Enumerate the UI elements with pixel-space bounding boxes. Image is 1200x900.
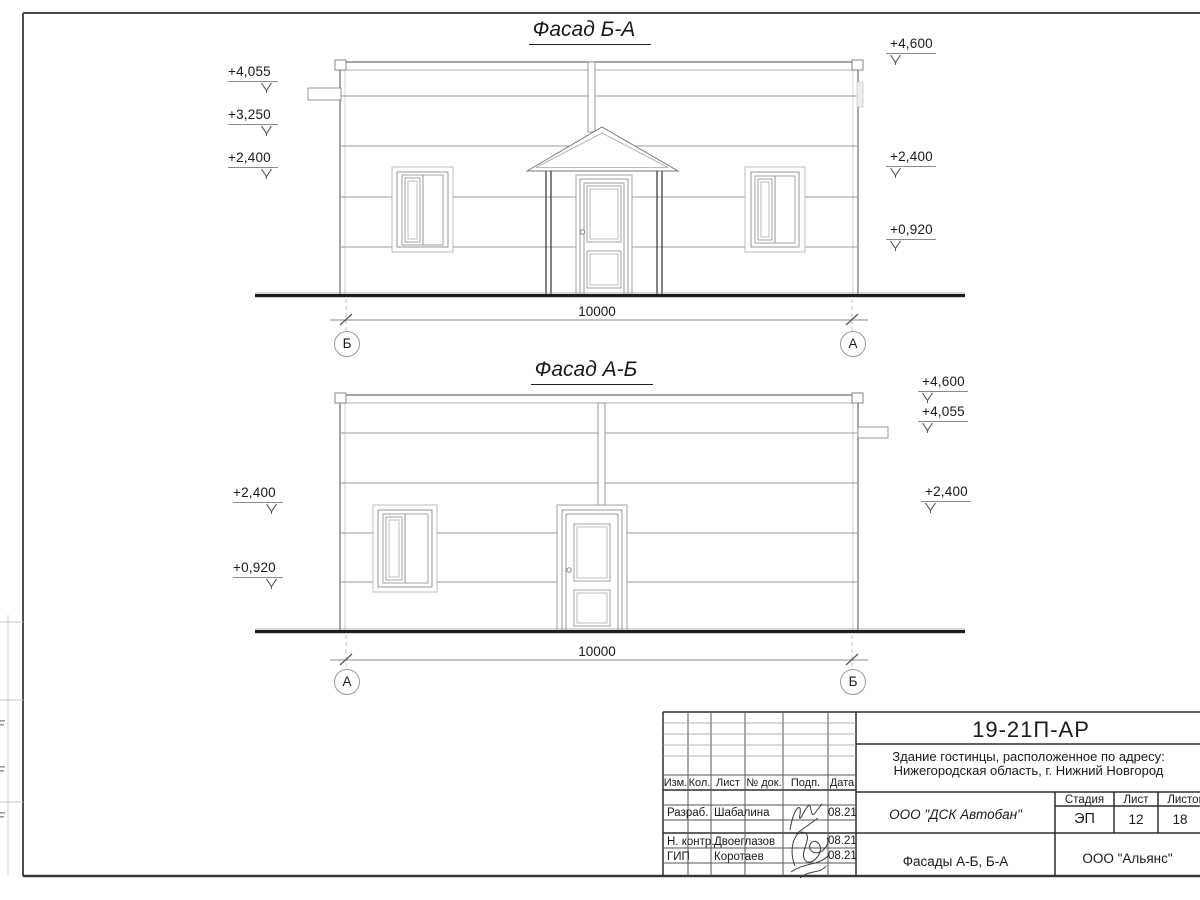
facade-ab-title: Фасад А-Б	[497, 358, 687, 385]
elevation-value: +2,400	[233, 485, 283, 500]
elevation-arrow-icon	[260, 82, 273, 93]
signer-role: Разраб.	[667, 807, 708, 819]
elevation-mark: +3,250	[228, 107, 278, 125]
door-handle	[580, 230, 584, 234]
dimension-label: 10000	[547, 644, 647, 659]
contractor-org: ООО "Альянс"	[1055, 851, 1200, 866]
elevation-arrow-icon	[265, 503, 278, 514]
elevation-arrow-icon	[921, 422, 934, 433]
stage-value: ЭП	[1055, 811, 1114, 827]
vent-pipe	[588, 62, 595, 132]
elevation-arrow-icon	[889, 54, 902, 65]
elevation-value: +3,250	[228, 107, 278, 122]
elevation-value: +4,055	[918, 404, 968, 419]
rev-header-podp: Подп.	[783, 777, 828, 789]
signer-role: Н. контр.	[667, 836, 714, 848]
sheets-value: 18	[1158, 812, 1200, 827]
signer-name: Коротаев	[714, 851, 764, 863]
vent-pipe	[598, 403, 605, 507]
elevation-value: +4,055	[228, 64, 278, 79]
facade-ba-title: Фасад Б-А	[495, 18, 685, 45]
design-company: ООО "ДСК Автобан"	[856, 807, 1055, 822]
window-left	[373, 505, 437, 592]
elevation-arrow-icon	[921, 392, 934, 403]
axis-marker-b-top: Б	[334, 331, 360, 357]
signature-shabalina	[790, 804, 822, 834]
parapet-cap-right	[852, 393, 863, 403]
wall-pipe-right	[858, 427, 888, 438]
parapet-cap-left	[335, 60, 346, 70]
drawing-sheet: Фасад Б-А +4,055 +3,250 +2,400 +4,600 +2…	[0, 0, 1200, 900]
object-address-line2: Нижегородская область, г. Нижний Новгоро…	[856, 763, 1200, 778]
rev-header-kol: Кол.	[688, 777, 711, 789]
ground-line	[255, 294, 965, 297]
parapet-cap-right	[852, 60, 863, 70]
wall-pipe-left	[308, 88, 341, 100]
sheet-value: 12	[1114, 812, 1158, 827]
rev-header-doc: № док.	[745, 777, 783, 789]
elevation-arrow-icon	[889, 167, 902, 178]
ground-line	[255, 630, 965, 633]
entrance-door	[557, 505, 627, 632]
parapet-cap-left	[335, 393, 346, 403]
signer-role: ГИП	[667, 851, 690, 863]
elevation-value: +0,920	[886, 222, 936, 237]
elevation-value: +4,600	[918, 374, 968, 389]
elevation-value: +2,400	[228, 150, 278, 165]
drawing-title: Фасады А-Б, Б-А	[856, 854, 1055, 869]
elevation-mark: +4,055	[228, 64, 278, 82]
elevation-arrow-icon	[924, 502, 937, 513]
elevation-value: +0,920	[233, 560, 283, 575]
elevation-mark: +0,920	[233, 560, 283, 578]
axis-marker-b-bottom: Б	[840, 669, 866, 695]
elevation-mark: +2,400	[921, 484, 971, 502]
signatures	[790, 804, 829, 878]
stage-label: Стадия	[1055, 794, 1114, 806]
elevation-mark: +2,400	[886, 149, 936, 167]
left-margin-stamp-fragment	[0, 615, 23, 875]
signer-date: 08.21	[828, 835, 856, 847]
signer-name: Шабалина	[714, 807, 770, 819]
elevation-value: +4,600	[886, 36, 936, 51]
signature-dvoeglazov-korotaev	[791, 832, 829, 878]
elevation-mark: +0,920	[886, 222, 936, 240]
doc-number: 19-21П-АР	[856, 717, 1200, 743]
elevation-arrow-icon	[260, 125, 273, 136]
elevation-arrow-icon	[265, 578, 278, 589]
entrance-door	[576, 175, 632, 296]
axis-marker-a-bottom: А	[334, 669, 360, 695]
elevation-value: +2,400	[886, 149, 936, 164]
signer-date: 08.21	[828, 807, 856, 819]
dimension-label: 10000	[547, 304, 647, 319]
window-right	[745, 167, 805, 252]
rev-header-data: Дата	[828, 777, 856, 789]
elevation-arrow-icon	[889, 240, 902, 251]
sheets-label: Листов	[1158, 794, 1200, 806]
elevation-value: +2,400	[921, 484, 971, 499]
elevation-mark: +2,400	[228, 150, 278, 168]
signer-name: Двоеглазов	[714, 836, 775, 848]
elevation-mark: +4,055	[918, 404, 968, 422]
window-left	[392, 167, 453, 252]
signer-date: 08.21	[828, 850, 856, 862]
facade-ba-building	[255, 60, 965, 297]
rev-header-izm: Изм.	[663, 777, 688, 789]
elevation-arrow-icon	[260, 168, 273, 179]
sheet-label: Лист	[1114, 794, 1158, 806]
elevation-mark: +4,600	[918, 374, 968, 392]
elevation-mark: +2,400	[233, 485, 283, 503]
wall-fragment-right	[857, 82, 863, 107]
door-handle	[567, 568, 571, 572]
facade-ab-building	[255, 393, 965, 633]
rev-header-list: Лист	[711, 777, 745, 789]
axis-marker-a-top: А	[840, 331, 866, 357]
elevation-mark: +4,600	[886, 36, 936, 54]
object-address-line1: Здание гостинцы, расположенное по адресу…	[856, 749, 1200, 764]
